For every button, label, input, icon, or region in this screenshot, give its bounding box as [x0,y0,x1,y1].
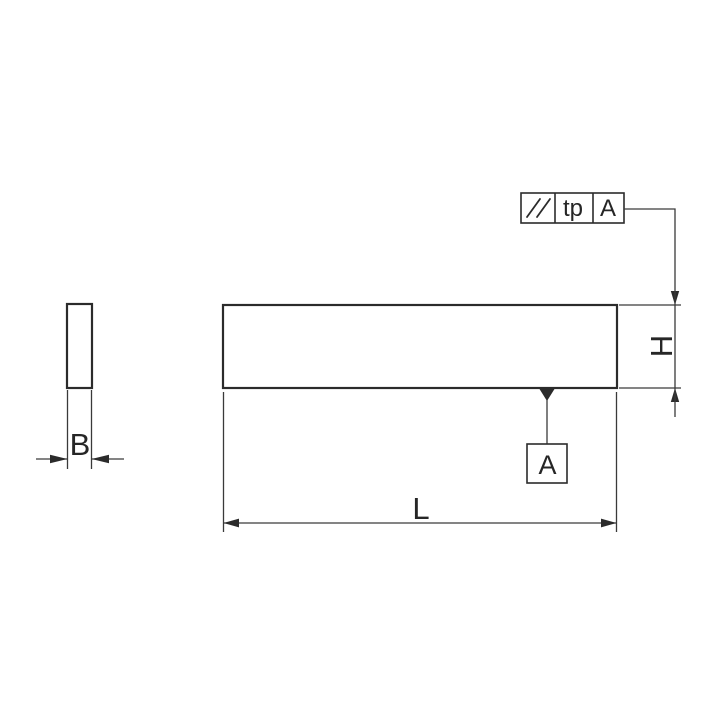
datum-triangle-icon [540,389,555,401]
length-dimension: L [224,392,617,532]
height-label: H [644,335,679,357]
length-label: L [412,491,429,526]
thickness-dimension: B [36,390,124,469]
side-view [67,304,92,388]
arrowhead-icon [92,455,110,463]
front-view [223,305,617,388]
parallelism-icon [527,199,550,217]
drawing-svg: B H L A [0,0,720,720]
front-view-outline [223,305,617,388]
arrowhead-icon [224,519,240,528]
arrowhead-icon [601,519,617,528]
datum-label: A [538,450,556,480]
datum-feature-symbol: A [527,389,567,483]
fcf-leader-line [624,209,675,417]
technical-drawing-canvas: B H L A [0,0,720,720]
fcf-datum-reference: A [600,195,616,222]
side-view-outline [67,304,92,388]
arrowhead-icon [50,455,68,463]
height-dimension: H [619,291,681,402]
thickness-label: B [70,427,91,462]
fcf-tolerance-value: tp [563,195,583,222]
